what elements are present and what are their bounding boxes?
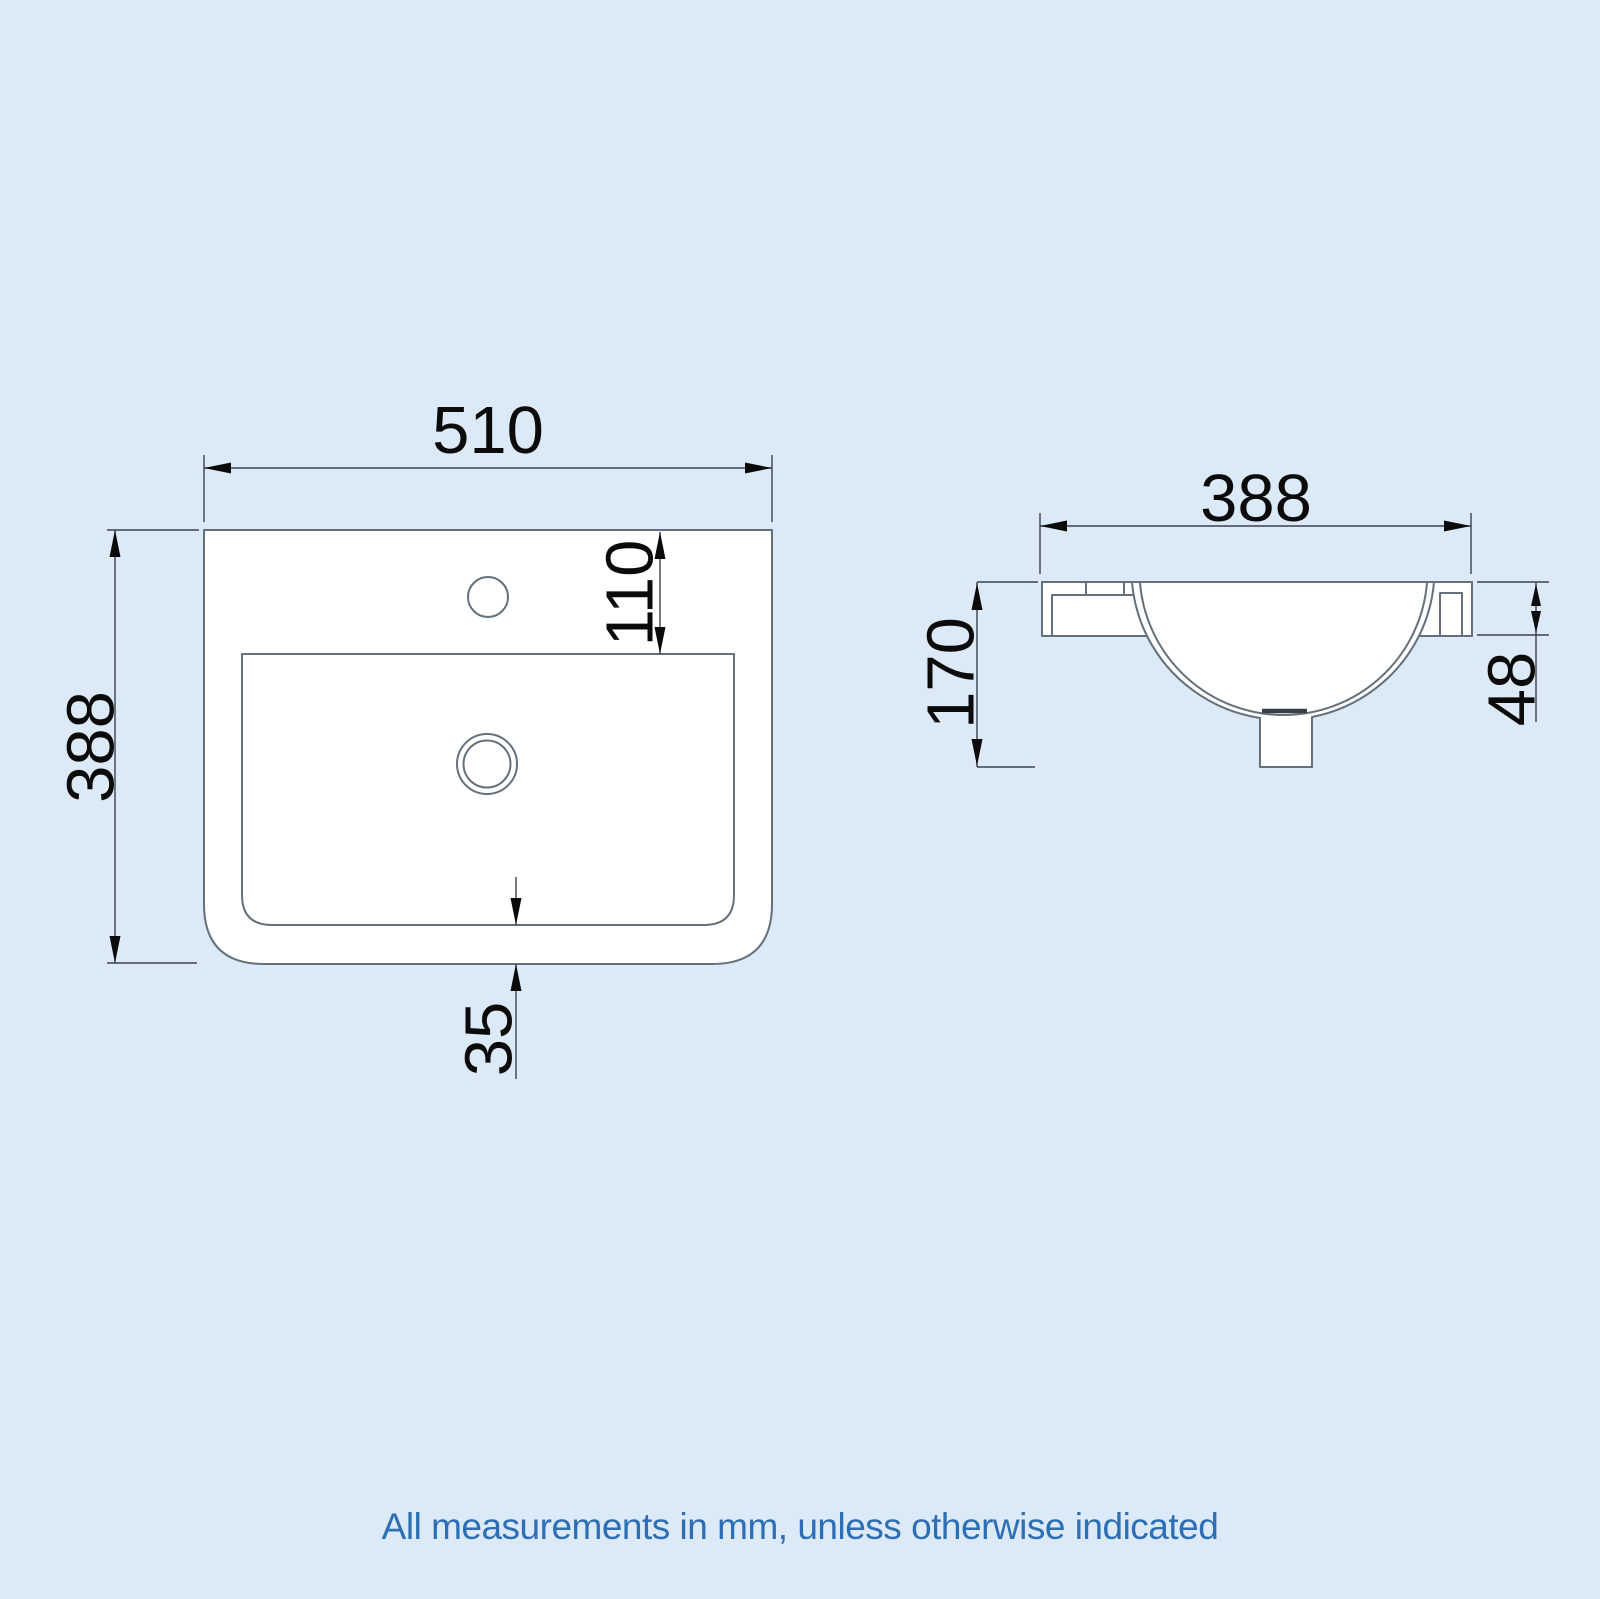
- rim-height-dim-label: 48: [1474, 652, 1549, 727]
- arrow-up-icon: [1531, 584, 1541, 606]
- side-height-dim-label: 170: [913, 617, 988, 729]
- basin-silhouette-side: [1042, 582, 1472, 767]
- technical-drawing: 510 388 110 35: [0, 0, 1600, 1599]
- arrow-down-icon: [972, 739, 983, 766]
- arrow-right-icon: [745, 463, 772, 474]
- side-height-dimension: 170: [913, 582, 1038, 767]
- plan-view: 510 388 110 35: [53, 393, 772, 1079]
- arrow-up-icon: [110, 530, 121, 557]
- arrow-up-icon: [511, 964, 522, 991]
- arrow-left-icon: [1040, 521, 1067, 532]
- arrow-down-icon: [110, 936, 121, 963]
- arrow-right-icon: [1444, 521, 1471, 532]
- measurement-note: All measurements in mm, unless otherwise…: [0, 1506, 1600, 1548]
- plan-width-dim-label: 510: [432, 393, 544, 468]
- side-depth-dimension: 388: [1040, 461, 1471, 574]
- plan-width-dimension: 510: [204, 393, 772, 522]
- side-depth-dim-label: 388: [1200, 461, 1312, 536]
- basin-bowl-outline-plan: [242, 654, 734, 925]
- bowl-edge-dim-label: 35: [451, 1002, 526, 1077]
- plan-depth-dim-label: 388: [53, 691, 128, 803]
- arrow-down-icon: [1531, 611, 1541, 633]
- arrow-left-icon: [204, 463, 231, 474]
- side-view: 388 170 48: [913, 461, 1549, 767]
- plan-depth-dimension: 388: [53, 530, 199, 963]
- tap-offset-dim-label: 110: [592, 540, 667, 647]
- tap-offset-dimension: 110: [592, 532, 667, 654]
- drawing-page: 510 388 110 35: [0, 0, 1600, 1599]
- arrow-up-icon: [972, 583, 983, 610]
- rim-height-dimension: 48: [1474, 582, 1549, 726]
